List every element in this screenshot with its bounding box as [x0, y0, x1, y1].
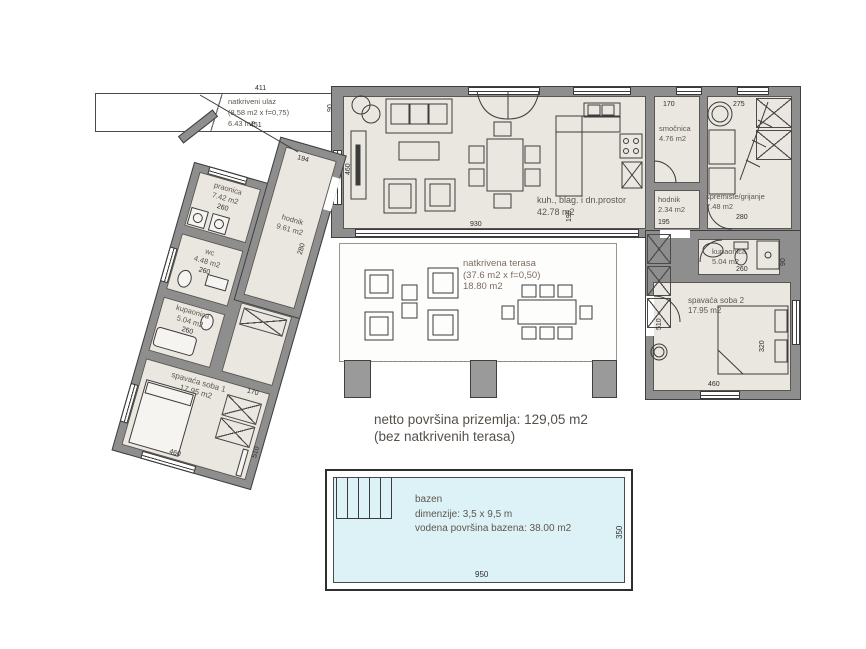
dim-label: 950	[475, 570, 488, 579]
floor-plan: natkriveni ulaz (8.58 m2 x f=0,75) 6.43 …	[0, 0, 866, 649]
window	[573, 87, 631, 95]
room-area: 42.78 m2	[537, 206, 626, 218]
room-name: kuh., blag. i dn.prostor	[537, 194, 626, 206]
room-factor: (8.58 m2 x f=0,75)	[228, 107, 289, 118]
dim-label: 350	[615, 526, 624, 539]
summary-text: netto površina prizemlja: 129,05 m2 (bez…	[374, 411, 588, 445]
room-label-living: kuh., blag. i dn.prostor 42.78 m2	[537, 194, 626, 218]
column	[344, 360, 371, 398]
dryer-drum	[213, 218, 225, 230]
dim-label: 90	[780, 258, 787, 266]
column	[592, 360, 617, 398]
pool: bazen dimenzije: 3,5 x 9,5 m vodena povr…	[325, 469, 633, 591]
room-name: kupaonica	[712, 247, 746, 257]
room-label-spremiste: spremište/grijanje 7.48 m2	[706, 192, 765, 212]
dim-label: 510	[656, 318, 663, 330]
summary-line2: (bez natkrivenih terasa)	[374, 428, 588, 445]
closet	[756, 98, 792, 128]
room-name: spavaća soba 2	[688, 296, 744, 306]
window	[700, 391, 740, 399]
dim-label: 460	[708, 381, 720, 388]
window	[737, 87, 769, 95]
washer-drum	[192, 212, 204, 224]
covered-entrance	[95, 93, 338, 132]
room-name: natkrivena terasa	[463, 258, 540, 270]
room-area: 2.34 m2	[658, 205, 685, 215]
room-label-kupaonica2: kupaonica 5.04 m2	[712, 247, 746, 267]
room-area: 18.80 m2	[463, 281, 540, 293]
room-area: 7.48 m2	[706, 202, 765, 212]
pool-stairs	[336, 478, 392, 519]
room-factor: (37.6 m2 x f=0,50)	[463, 270, 540, 282]
window	[468, 87, 540, 95]
room-label-smocnica: smočnica 4.76 m2	[659, 124, 691, 144]
dim-label: 275	[733, 101, 745, 108]
room-name: smočnica	[659, 124, 691, 134]
window	[676, 87, 702, 95]
summary-line1: netto površina prizemlja: 129,05 m2	[374, 411, 588, 428]
pool-area: vodena površina bazena: 38.00 m2	[415, 522, 571, 537]
terrace-glass-door	[355, 229, 639, 237]
room-name: natkriveni ulaz	[228, 96, 289, 107]
dim-label: 320	[759, 340, 766, 352]
left-wing: praonica 7.42 m2 260 hodnik 9.61 m2 wc 4…	[111, 162, 333, 490]
pool-label: bazen dimenzije: 3,5 x 9,5 m vodena povr…	[415, 493, 571, 537]
dim-label: 451	[250, 122, 262, 129]
room-label-soba2: spavaća soba 2 17.95 m2	[688, 296, 744, 316]
dim-label: 260	[736, 266, 748, 273]
pool-name: bazen	[415, 493, 571, 508]
dim-label: 411	[255, 85, 266, 92]
room-label-terasa: natkrivena terasa (37.6 m2 x f=0,50) 18.…	[463, 258, 540, 293]
dim-label: 930	[470, 221, 482, 228]
room-label-hodnik2: hodnik 2.34 m2	[658, 195, 685, 215]
dim-label: 170	[663, 101, 675, 108]
wardrobe	[647, 234, 671, 264]
dim-label: 195	[658, 219, 670, 226]
room-area: 4.76 m2	[659, 134, 691, 144]
closet	[756, 130, 792, 160]
dim-label: 460	[345, 163, 352, 175]
column	[470, 360, 497, 398]
window	[792, 300, 800, 345]
room-name: spremište/grijanje	[706, 192, 765, 202]
room-area: 17.95 m2	[688, 306, 744, 316]
dim-label: 280	[736, 214, 748, 221]
pool-dimensions: dimenzije: 3,5 x 9,5 m	[415, 508, 571, 523]
wardrobe	[647, 266, 671, 296]
room-name: hodnik	[658, 195, 685, 205]
dim-label: 195	[566, 210, 573, 222]
